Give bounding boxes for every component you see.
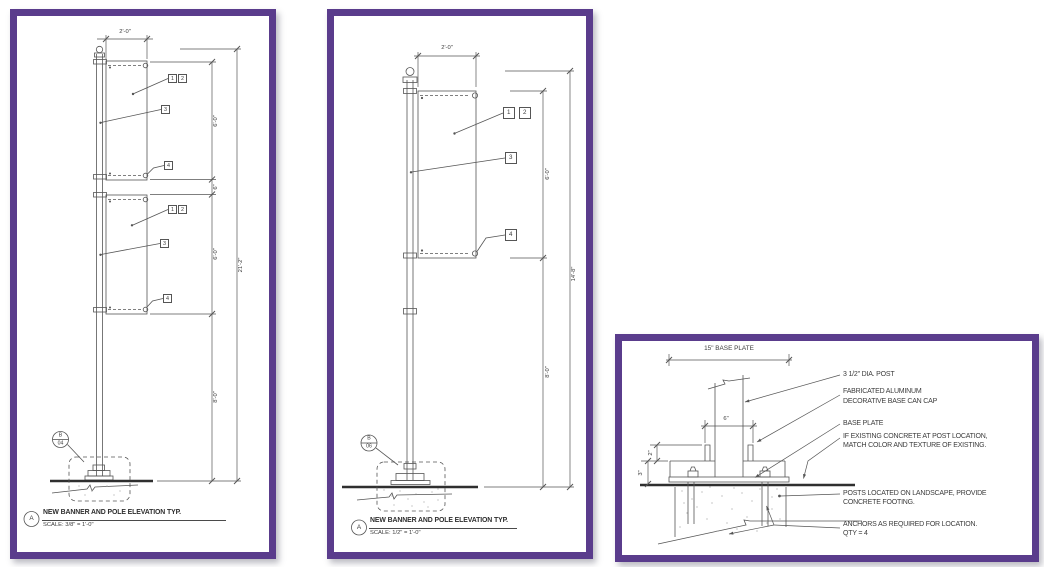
callout-3b: 3: [160, 239, 169, 248]
note-post: 3 1/2" DIA. POST: [843, 371, 894, 378]
callout-4b: 4: [163, 294, 172, 303]
elevation-drawing-middle: [334, 16, 586, 552]
note-leaders: [729, 375, 840, 534]
view-letter: A: [29, 516, 33, 522]
callout-leaders: [99, 79, 168, 308]
note-existing-line1: IF EXISTING CONCRETE AT POST LOCATION,: [843, 433, 987, 440]
callout-4: 4: [164, 161, 173, 170]
callout-1: 1: [168, 74, 177, 83]
dim-base-height: 3": [639, 470, 645, 475]
view-letter: A: [357, 524, 361, 530]
note-base-plate: BASE PLATE: [843, 420, 883, 427]
panel-base-plate-detail: 15" BASE PLATE 6" 2" 3" 3 1/2" DIA. POST…: [615, 334, 1039, 562]
callout-2: 2: [178, 74, 187, 83]
callout-1: 1: [503, 107, 515, 119]
detail-marker-letter: B: [367, 437, 370, 442]
base-plate-dimension: [666, 354, 792, 366]
callout-2b: 2: [178, 205, 187, 214]
detail-marker-letter: B: [59, 433, 62, 438]
pole-base: [50, 457, 153, 501]
dim-pole-below: 8'-0": [214, 391, 220, 403]
base-height-dimension: [641, 458, 668, 487]
note-anchors-line2: QTY = 4: [843, 530, 868, 537]
base-can-cap: [670, 445, 785, 477]
title-underline: [369, 528, 517, 529]
concrete-footing: [658, 482, 862, 544]
note-existing-line2: MATCH COLOR AND TEXTURE OF EXISTING.: [843, 442, 986, 449]
title-underline: [42, 520, 226, 521]
view-scale: SCALE: 1/2" = 1'-0": [370, 531, 421, 537]
detail-marker-number: 04: [58, 441, 64, 446]
detail-marker-number: 06: [366, 444, 372, 449]
view-title: NEW BANNER AND POLE ELEVATION TYP.: [370, 518, 508, 525]
elevation-drawing-left: [17, 16, 269, 552]
callout-3: 3: [505, 152, 517, 164]
dim-banner-width: 2'-0": [441, 46, 453, 52]
callout-2: 2: [519, 107, 531, 119]
callout-leaders: [410, 113, 505, 252]
dim-banner-gap: 6": [214, 184, 220, 189]
banner: [418, 91, 478, 258]
callout-3: 3: [161, 105, 170, 114]
dim-banner-width: 2'-0": [119, 30, 131, 36]
view-title: NEW BANNER AND POLE ELEVATION TYP.: [43, 510, 181, 517]
dim-can-width: 6": [723, 417, 728, 423]
dim-overall-height: 21'-2": [239, 258, 245, 273]
dimension-ticks: [103, 36, 240, 484]
note-cap-line2: DECORATIVE BASE CAN CAP: [843, 398, 937, 405]
callout-4: 4: [505, 229, 517, 241]
banners: [106, 61, 148, 314]
note-footing-line1: POSTS LOCATED ON LANDSCAPE, PROVIDE: [843, 490, 986, 497]
pole: [94, 46, 107, 476]
panel-elevation-double-banner: 2'-0" 6'-0" 6" 6'-0" 8'-0" 21'-2" 1 2 3 …: [10, 9, 276, 559]
drawing-sheet: { "colors": {"frame":"#5a3c8c","line":"#…: [0, 0, 1044, 567]
view-scale: SCALE: 3/8" = 1'-0": [43, 523, 94, 529]
note-footing-line2: CONCRETE FOOTING.: [843, 499, 915, 506]
base-plate: [669, 477, 789, 482]
note-anchors-line1: ANCHORS AS REQUIRED FOR LOCATION.: [843, 521, 977, 528]
dim-banner-height: 6'-0": [546, 168, 552, 180]
can-width-dimension: [701, 420, 757, 443]
dim-banner-top-height: 6'-0": [214, 115, 220, 127]
dim-base-plate: 15" BASE PLATE: [704, 345, 754, 351]
dim-pole-below: 8'-0": [546, 366, 552, 378]
pole: [403, 68, 417, 481]
detail-marker-bubble: [53, 432, 85, 463]
dim-banner-bottom-height: 6'-0": [214, 248, 220, 260]
dim-cap-height: 2": [649, 450, 655, 455]
panel-elevation-single-banner: 2'-0" 6'-0" 8'-0" 14'-8" 1 2 3 4 B 06 A …: [327, 9, 593, 559]
callout-1b: 1: [168, 205, 177, 214]
note-cap-line1: FABRICATED ALUMINUM: [843, 388, 922, 395]
dimension-ticks: [415, 53, 573, 490]
dimension-lines: [414, 52, 574, 487]
dim-overall-height: 14'-8": [572, 267, 578, 282]
pole-base: [342, 462, 478, 511]
